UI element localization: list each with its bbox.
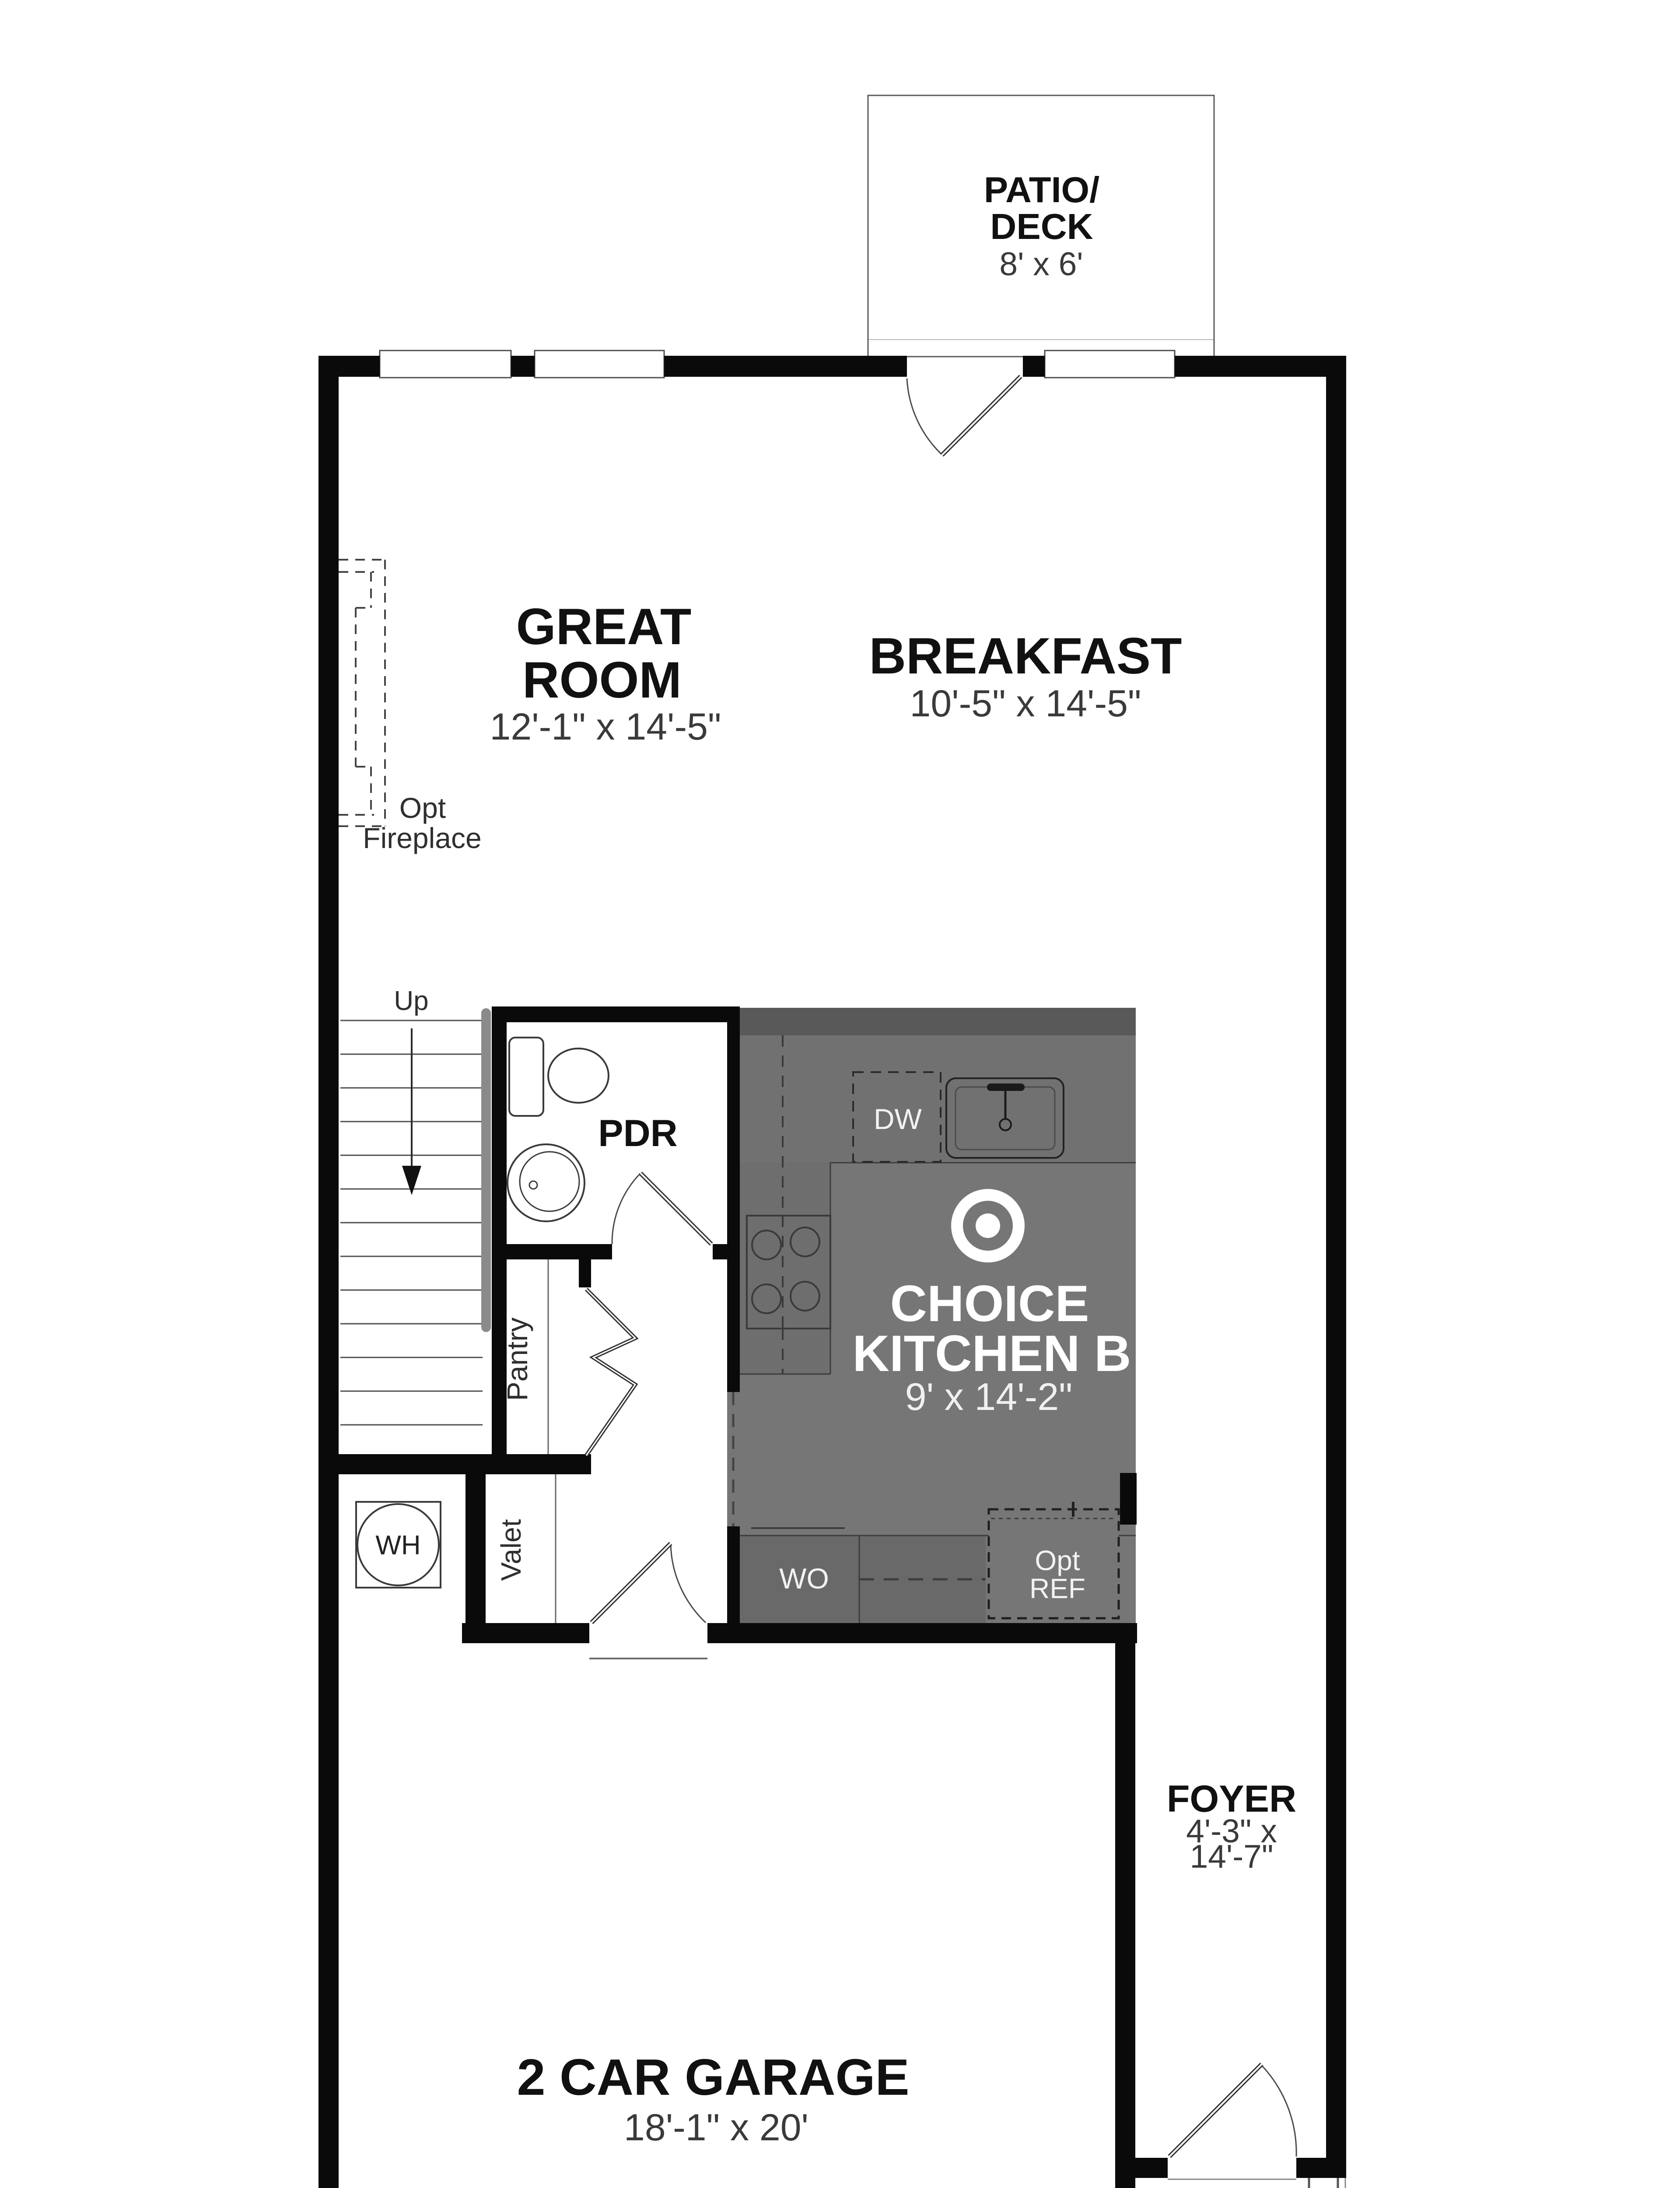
svg-text:DW: DW (874, 1103, 922, 1135)
svg-text:10'-5" x 14'-5": 10'-5" x 14'-5" (910, 683, 1141, 725)
svg-text:BREAKFAST: BREAKFAST (869, 627, 1182, 684)
svg-text:8' x 6': 8' x 6' (999, 245, 1083, 282)
svg-text:Up: Up (394, 986, 428, 1016)
svg-text:12'-1" x 14'-5": 12'-1" x 14'-5" (490, 706, 721, 748)
svg-text:2 CAR GARAGE: 2 CAR GARAGE (517, 2048, 909, 2106)
svg-text:Valet: Valet (495, 1519, 527, 1581)
svg-text:14'-7": 14'-7" (1190, 1838, 1273, 1875)
svg-text:WH: WH (375, 1530, 420, 1560)
svg-text:Opt: Opt (399, 792, 446, 824)
svg-text:GREAT: GREAT (516, 598, 692, 655)
svg-text:REF: REF (1029, 1573, 1085, 1604)
svg-text:KITCHEN B: KITCHEN B (853, 1325, 1131, 1382)
svg-text:DECK: DECK (990, 206, 1093, 247)
svg-text:ROOM: ROOM (522, 651, 682, 708)
svg-text:CHOICE: CHOICE (890, 1275, 1089, 1332)
svg-text:Opt: Opt (1035, 1545, 1080, 1576)
svg-text:9' x 14'-2": 9' x 14'-2" (905, 1375, 1073, 1418)
svg-text:PATIO/: PATIO/ (984, 169, 1099, 210)
svg-text:WO: WO (779, 1562, 829, 1595)
svg-text:PDR: PDR (598, 1112, 678, 1154)
svg-text:Fireplace: Fireplace (363, 822, 481, 854)
svg-text:18'-1" x 20': 18'-1" x 20' (624, 2107, 808, 2149)
svg-text:Pantry: Pantry (501, 1318, 533, 1401)
